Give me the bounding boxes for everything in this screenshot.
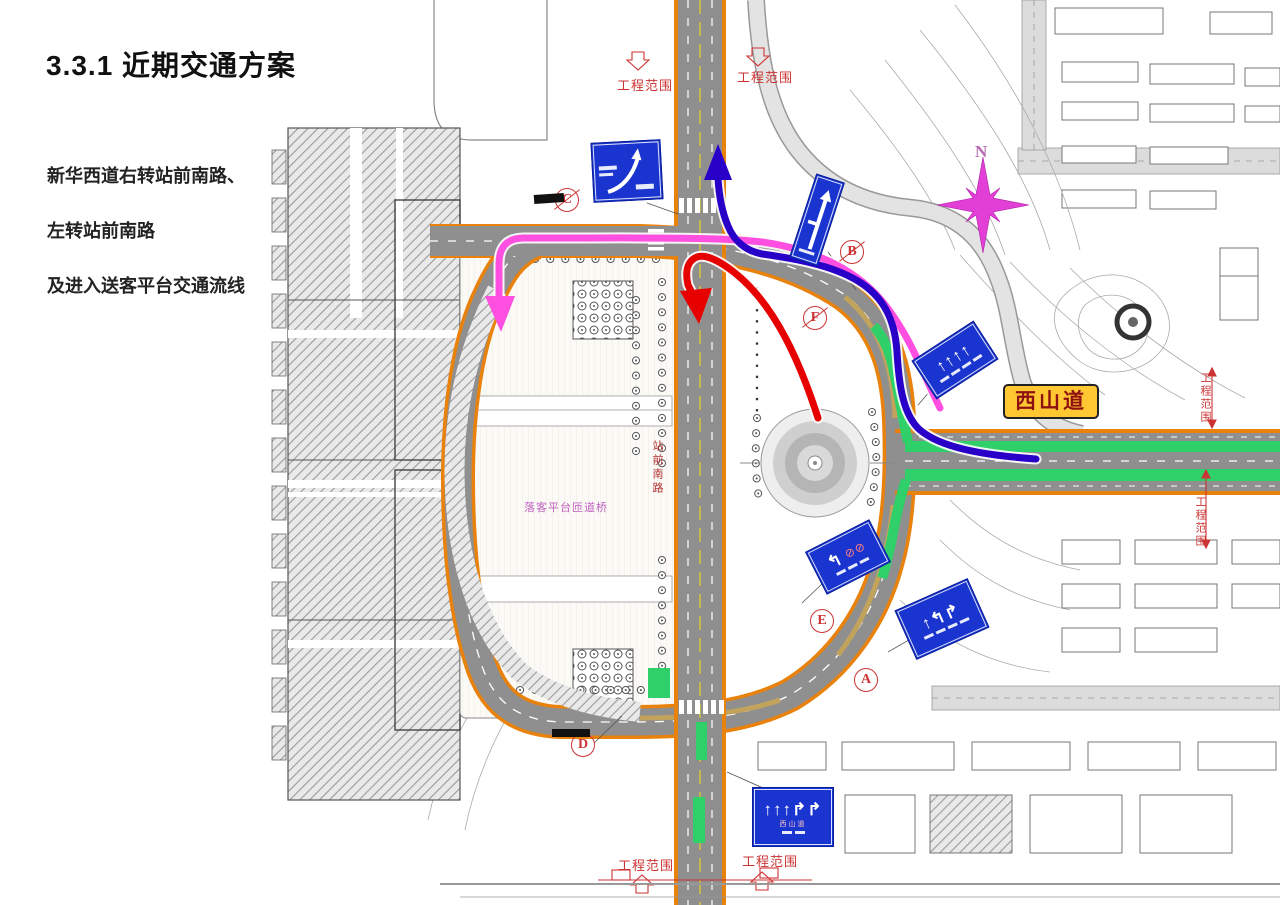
traffic-plan-slide: 3.3.1 近期交通方案 新华西道右转站前南路、 左转站前南路 及进入送客平台交…: [0, 0, 1280, 905]
scope-label-bottom-left: 工程范围: [618, 855, 674, 874]
page-title: 3.3.1 近期交通方案: [46, 44, 296, 84]
scope-label-top-left: 工程范围: [617, 75, 673, 94]
traffic-plan-map: [0, 0, 1280, 905]
north-compass-star: [937, 157, 1029, 253]
scope-label-top-right: 工程范围: [737, 67, 793, 86]
description-line-1: 新华西道右转站前南路、: [47, 162, 245, 188]
description-line-2: 左转站前南路: [47, 217, 155, 243]
lane-sign-bottom: ↑↑↑↱↱ 西山道: [752, 787, 834, 847]
bus-stop-bar-south: [552, 729, 590, 737]
lane-arrows-icon: ↑↑↑↱↱: [764, 801, 823, 818]
guide-sign-northwest: [590, 139, 663, 203]
bottom-boundary-road: [440, 884, 1280, 897]
scope-label-right-lower: 工程范围: [1192, 496, 1208, 548]
midright-buildings: [1062, 540, 1280, 652]
station-road-label: 站前南路: [649, 440, 665, 496]
marker-e: E: [810, 609, 834, 633]
marker-b: B: [840, 240, 864, 264]
bottom-sign-road-text: 西山道: [780, 821, 807, 828]
dropoff-ramp-label: 落客平台匝道桥: [524, 499, 608, 515]
central-road: [674, 0, 726, 905]
sign-text-bars: [782, 831, 805, 834]
lane-arrows-icon: ↑↰↱: [919, 600, 962, 632]
marker-a: A: [854, 668, 878, 692]
park-kiosk: [1117, 306, 1149, 338]
marker-f: F: [803, 306, 827, 330]
bottomright-buildings: [758, 742, 1276, 853]
xishan-road-label: 西山道: [1003, 384, 1099, 419]
guide-sign-arrow-icon: [594, 143, 661, 198]
description-line-3: 及进入送客平台交通流线: [47, 272, 245, 298]
scope-label-right-upper: 工程范围: [1197, 372, 1213, 424]
topleft-parcel: [434, 0, 547, 140]
north-label: N: [975, 142, 987, 162]
scope-label-bottom-right: 工程范围: [742, 851, 798, 870]
